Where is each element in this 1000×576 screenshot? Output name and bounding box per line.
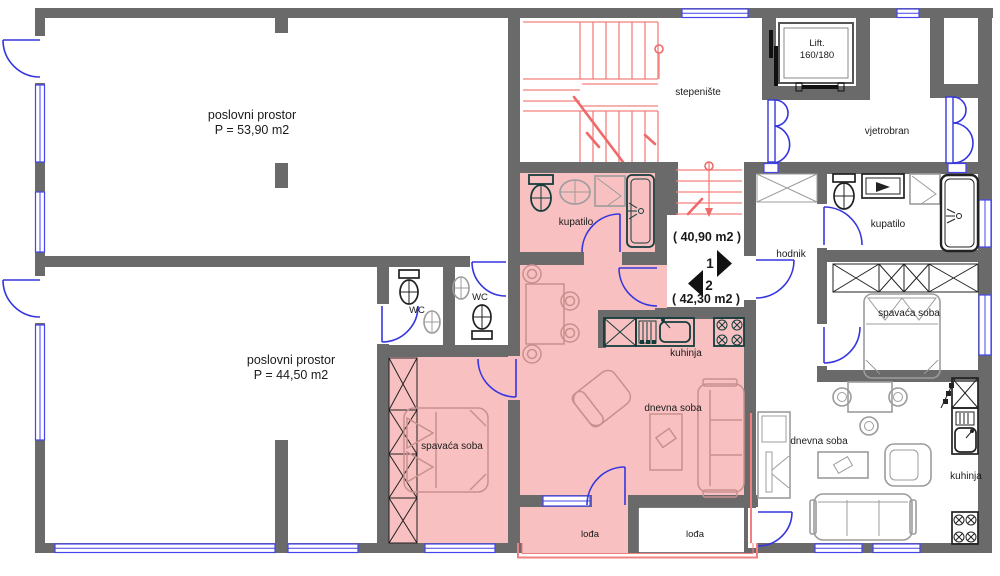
wc-right-fixtures (453, 277, 492, 339)
label-bathroom-apt2: kupatilo (559, 217, 594, 228)
door-vestibule-right (946, 97, 973, 163)
door-wc-right (472, 262, 506, 296)
label-living-apt2: dnevna soba (644, 403, 702, 414)
label-living-apt1: dnevna soba (790, 436, 848, 447)
window (682, 9, 748, 18)
window (55, 544, 275, 553)
bathtub-icon (941, 175, 978, 251)
window (425, 544, 495, 553)
label-loggia-apt2: lođa (581, 529, 600, 540)
window (815, 544, 862, 553)
label-apt2-number: 2 (705, 278, 713, 293)
sink-icon (453, 277, 469, 299)
label-staircase: stepenište (675, 87, 721, 98)
label-bathroom-apt1: kupatilo (871, 219, 906, 230)
label-lift-dimensions: 160/180 (800, 50, 834, 61)
label-bedroom-apt1: spavaća soba (878, 308, 940, 319)
kitchen-sink-icon (952, 408, 978, 454)
window (979, 200, 991, 247)
label-kitchen-apt1: kuhinja (950, 471, 982, 482)
label-hallway: hodnik (776, 249, 806, 260)
armchair (885, 444, 931, 486)
walls (35, 8, 993, 553)
floor-plan-page: poslovni prostor P = 53,90 m2 poslovni p… (0, 0, 1000, 576)
toilet-icon (399, 270, 419, 304)
washing-machine-icon (910, 174, 940, 204)
label-vestibule: vjetrobran (865, 126, 909, 137)
entry-stairs-red (676, 162, 742, 217)
label-wc-right: WC (472, 292, 488, 303)
bedroom-apt1-furniture (833, 264, 978, 378)
staircase-red-drawing (523, 22, 663, 170)
window (288, 544, 358, 553)
window (979, 295, 991, 355)
label-kitchen-apt2: kuhinja (670, 348, 702, 359)
label-apt1-area: ( 40,90 m2 ) (673, 230, 741, 244)
vanity-sink-icon (862, 174, 904, 198)
door-bathroom-apt1 (824, 207, 862, 245)
sink-icon (560, 180, 590, 204)
wardrobe (833, 264, 978, 292)
floor-plan-drawing: poslovni prostor P = 53,90 m2 poslovni p… (0, 0, 1000, 576)
window (36, 85, 45, 162)
label-apt2-area: ( 42,30 m2 ) (672, 292, 740, 306)
label-business-bottom: poslovni prostor (247, 353, 335, 367)
dining-table (833, 382, 907, 435)
label-business-bottom-area: P = 44,50 m2 (254, 368, 329, 382)
door-hallway-apt1 (756, 260, 794, 298)
living-apt1-furniture (758, 382, 931, 540)
door-business-bottom (3, 280, 40, 317)
door-vestibule-left (768, 100, 790, 163)
bed (864, 294, 940, 378)
label-business-top: poslovni prostor (208, 108, 296, 122)
sofa (810, 494, 916, 540)
toilet-icon (833, 174, 855, 209)
apartment1-arrow-right (717, 250, 732, 277)
tv-unit (758, 412, 790, 498)
toilet-icon (472, 305, 492, 339)
bathroom-apt1-fixtures (833, 174, 978, 251)
window (873, 544, 920, 553)
label-bedroom-apt2: spavaća soba (421, 441, 483, 452)
label-loggia-apt1: lođa (686, 529, 705, 540)
window (543, 496, 590, 506)
label-apt1-number: 1 (706, 256, 714, 271)
kitchen-apt1-fixtures (941, 378, 978, 544)
window (948, 164, 966, 173)
door-loggia-apt1 (758, 512, 792, 546)
fridge-icon (941, 378, 978, 408)
wc-left-fixtures (399, 270, 440, 333)
hallway-closet (757, 174, 817, 202)
stove-icon (952, 512, 978, 544)
label-wc-left: WC (409, 305, 425, 316)
sink-icon (424, 311, 440, 333)
label-lift: Lift. (809, 38, 824, 49)
door-business-top (3, 40, 40, 77)
window (897, 9, 919, 18)
window (764, 164, 778, 173)
window (36, 192, 45, 252)
label-business-top-area: P = 53,90 m2 (215, 123, 290, 137)
door-bedroom-apt1 (824, 327, 860, 363)
coffee-table (818, 452, 868, 478)
window (36, 325, 45, 440)
